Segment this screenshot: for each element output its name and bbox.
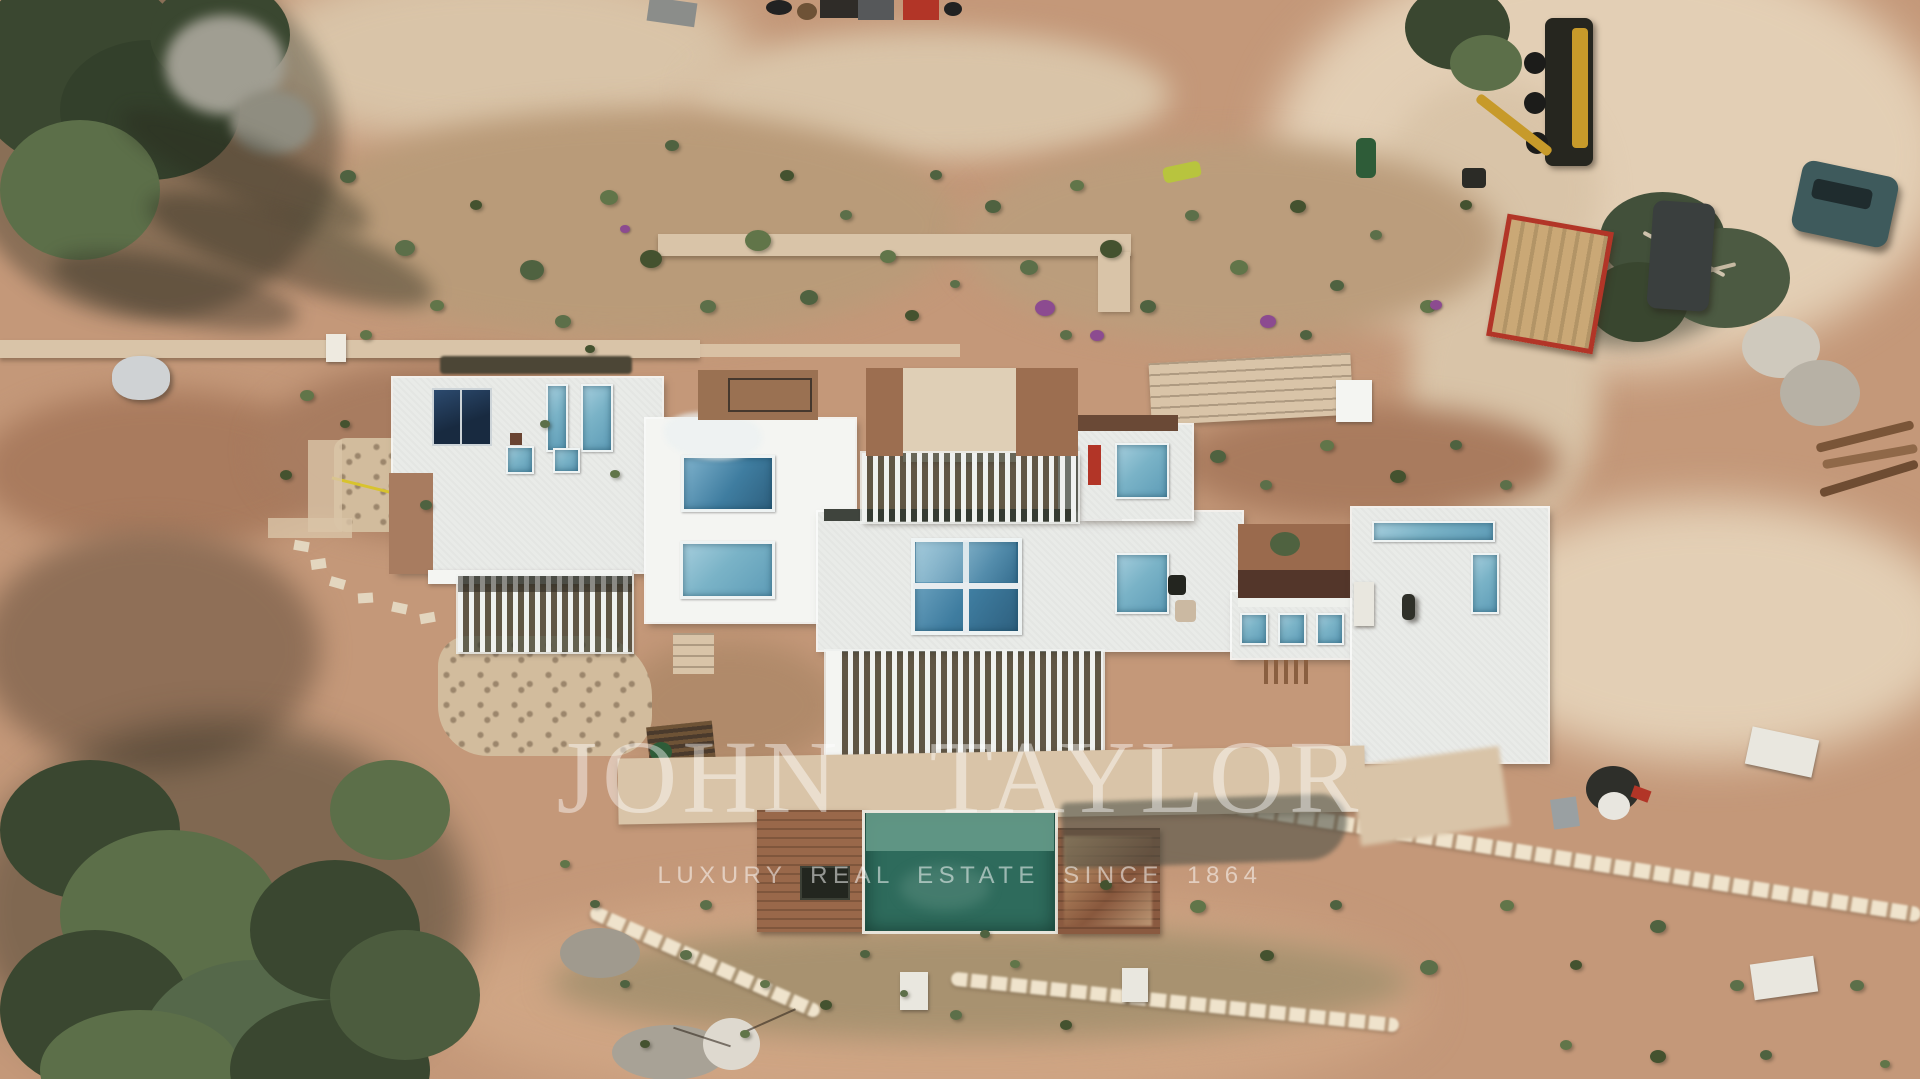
bougainvillea-shrub — [1090, 330, 1104, 341]
shrub — [700, 300, 716, 313]
shrub — [860, 950, 870, 958]
shrub — [600, 190, 618, 205]
shrub — [280, 470, 292, 480]
shrub — [1230, 260, 1248, 275]
shrub — [1020, 260, 1038, 275]
shrub — [1330, 280, 1344, 291]
shrub — [590, 900, 600, 908]
shrub — [950, 1010, 962, 1020]
shrub — [520, 260, 544, 280]
shrub — [1500, 480, 1512, 490]
shrub — [980, 930, 990, 938]
shrub — [360, 330, 372, 340]
shrub — [1390, 470, 1406, 483]
shrub — [1370, 230, 1382, 240]
shrub — [1460, 200, 1472, 210]
shrub-layer — [0, 0, 1920, 1079]
shrub — [905, 310, 919, 321]
shrub — [430, 300, 444, 311]
shrub — [1210, 450, 1226, 463]
shrub — [620, 980, 630, 988]
shrub — [1850, 980, 1864, 991]
shrub — [760, 980, 770, 988]
shrub — [540, 420, 550, 428]
shrub — [1880, 1060, 1890, 1068]
shrub — [1010, 960, 1020, 968]
shrub — [1140, 300, 1156, 313]
shrub — [880, 250, 896, 263]
shrub — [1500, 900, 1514, 911]
shrub — [555, 315, 571, 328]
shrub — [1650, 1050, 1666, 1063]
shrub — [1100, 880, 1112, 890]
shrub — [1060, 1020, 1072, 1030]
shrub — [1450, 440, 1462, 450]
shrub — [1185, 210, 1199, 221]
shrub — [1300, 330, 1312, 340]
shrub — [1420, 960, 1438, 975]
bougainvillea-shrub — [620, 225, 630, 233]
shrub — [1650, 920, 1666, 933]
shrub — [800, 290, 818, 305]
shrub — [1570, 960, 1582, 970]
shrub — [1260, 950, 1274, 961]
shrub — [1560, 1040, 1572, 1050]
bougainvillea-shrub — [1035, 300, 1055, 316]
shrub — [680, 950, 692, 960]
shrub — [1260, 480, 1272, 490]
shrub — [640, 250, 662, 268]
shrub — [1330, 900, 1342, 910]
shrub — [560, 860, 570, 868]
shrub — [700, 900, 712, 910]
shrub — [610, 470, 620, 478]
shrub — [420, 500, 432, 510]
aerial-photo: JOHN TAYLOR LUXURY REAL ESTATE SINCE 186… — [0, 0, 1920, 1079]
shrub — [340, 420, 350, 428]
shrub — [1320, 440, 1334, 451]
shrub — [1290, 200, 1306, 213]
shrub — [820, 1000, 832, 1010]
shrub — [840, 210, 852, 220]
shrub — [1730, 980, 1744, 991]
shrub — [640, 1040, 650, 1048]
shrub — [1190, 900, 1206, 913]
shrub — [395, 240, 415, 256]
bougainvillea-shrub — [1430, 300, 1442, 310]
shrub — [1100, 240, 1122, 258]
shrub — [780, 170, 794, 181]
shrub — [950, 280, 960, 288]
shrub — [1060, 330, 1072, 340]
shrub — [300, 390, 314, 401]
shrub — [900, 990, 908, 997]
shrub — [1070, 180, 1084, 191]
shrub — [985, 200, 1001, 213]
shrub — [665, 140, 679, 151]
shrub — [930, 170, 942, 180]
shrub — [340, 170, 356, 183]
shrub — [470, 200, 482, 210]
shrub — [745, 230, 771, 251]
shrub — [585, 345, 595, 353]
bougainvillea-shrub — [1260, 315, 1276, 328]
shrub — [740, 1030, 750, 1038]
shrub — [1760, 1050, 1772, 1060]
